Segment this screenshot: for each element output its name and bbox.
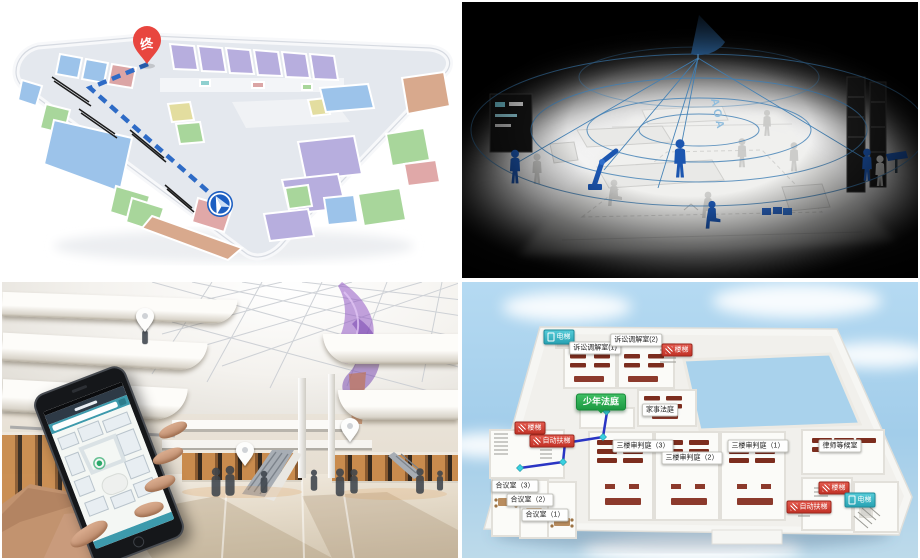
label-mediation-room-2: 诉讼调解室(2) — [610, 334, 662, 347]
label-trial-court-2: 三楼审判庭（2） — [662, 452, 723, 465]
escalator-icon — [791, 504, 798, 511]
indoor-positioning-collage: 终 — [0, 0, 920, 560]
location-pin-icon — [236, 442, 254, 466]
label-deliberation-1: 合议室（1） — [522, 509, 569, 522]
label-stairs-left: 楼梯 — [515, 422, 546, 435]
beacon-cone — [691, 15, 725, 60]
label-trial-court-1: 三楼审判庭（1） — [728, 440, 789, 453]
panel-aoa-positioning-scene: AOA — [460, 0, 920, 280]
label-text: 合议室（2） — [511, 497, 550, 504]
label-text: 合议室（1） — [526, 512, 565, 519]
location-pin-icon — [341, 418, 359, 442]
courtyard-opening — [684, 354, 860, 430]
elevator-icon — [548, 333, 555, 342]
entrance-tab — [712, 530, 782, 544]
label-text: 电梯 — [858, 497, 872, 504]
shoppers — [142, 325, 443, 496]
phone-home-button — [132, 535, 146, 549]
label-text: 合议室（3） — [496, 483, 535, 490]
panel-mall-navigation-photo — [0, 280, 460, 560]
label-text: 律师等候室 — [823, 443, 858, 450]
stairs-icon — [519, 425, 526, 432]
label-text: 自动扶梯 — [800, 504, 828, 511]
label-text: 自动扶梯 — [543, 438, 571, 445]
label-text: 家事法庭 — [646, 407, 674, 414]
label-text: 诉讼调解室(2) — [614, 337, 658, 344]
label-text: 三楼审判庭（1） — [732, 443, 785, 450]
escalator — [388, 452, 422, 479]
panel-courthouse-map: 电梯 诉讼调解室(1) 诉讼调解室(2) 楼梯 少年法庭 家事法庭 楼梯 自动扶… — [460, 280, 920, 560]
label-elevator-right: 电梯 — [845, 493, 876, 508]
label-text: 楼梯 — [832, 485, 846, 492]
label-escalator-left: 自动扶梯 — [530, 435, 575, 448]
label-text: 少年法庭 — [583, 398, 619, 407]
location-pin-icon — [136, 308, 154, 332]
label-text: 电梯 — [557, 334, 571, 341]
stairs-icon — [823, 485, 830, 492]
label-text: 三楼审判庭（3） — [617, 443, 670, 450]
label-escalator-right: 自动扶梯 — [787, 501, 832, 514]
label-deliberation-2: 合议室（2） — [507, 494, 554, 507]
label-text: 三楼审判庭（2） — [666, 455, 719, 462]
label-lawyer-lounge: 律师等候室 — [819, 440, 862, 453]
label-text: 楼梯 — [675, 347, 689, 354]
mall-map-illustration: 终 — [2, 2, 458, 278]
label-deliberation-3: 合议室（3） — [492, 480, 539, 493]
label-stairs-top: 楼梯 — [662, 344, 693, 357]
label-family-court: 家事法庭 — [642, 404, 678, 417]
phone-earpiece — [71, 385, 87, 394]
label-text: 楼梯 — [528, 425, 542, 432]
aoa-illustration: AOA — [462, 2, 918, 278]
elevator-icon — [849, 496, 856, 505]
label-juvenile-court: 少年法庭 — [576, 394, 626, 411]
escalator-icon — [534, 438, 541, 445]
location-pins — [136, 308, 359, 466]
stairs-icon — [666, 347, 673, 354]
panel-mall-3d-map: 终 — [0, 0, 460, 280]
